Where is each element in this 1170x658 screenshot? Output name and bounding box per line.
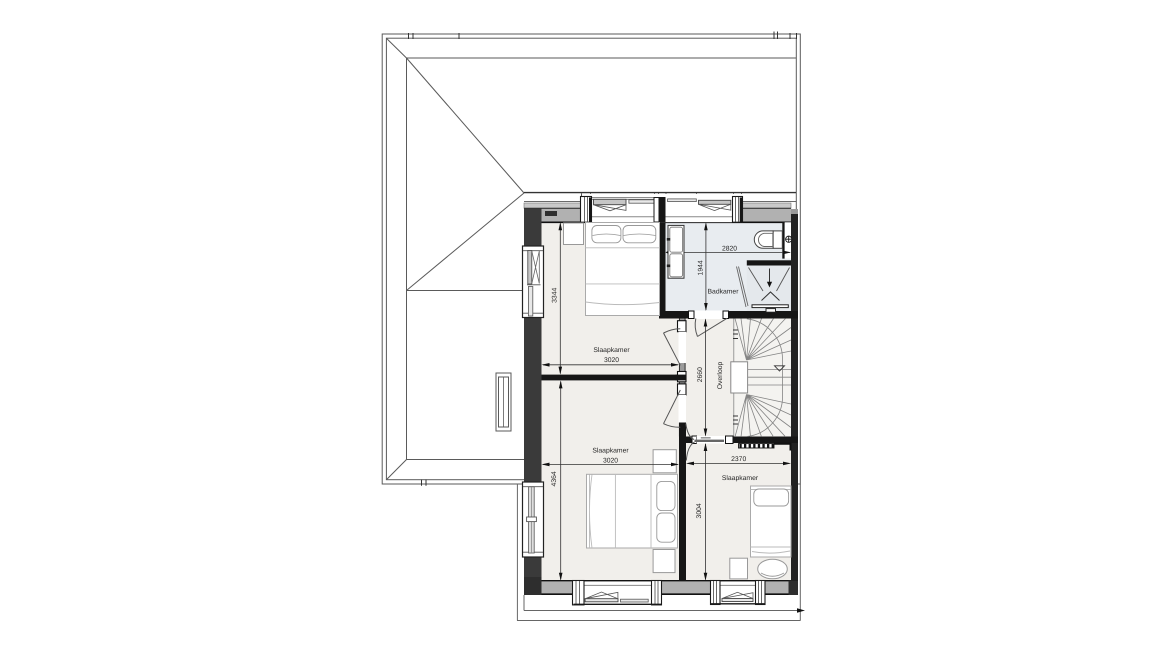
svg-text:3004: 3004 bbox=[696, 503, 703, 518]
svg-text:Slaapkamer: Slaapkamer bbox=[722, 475, 759, 482]
svg-text:2660: 2660 bbox=[697, 367, 704, 382]
svg-text:Overloop: Overloop bbox=[717, 361, 724, 389]
svg-text:1944: 1944 bbox=[697, 260, 704, 275]
svg-text:2370: 2370 bbox=[731, 456, 746, 463]
svg-text:Slaapkamer: Slaapkamer bbox=[593, 347, 630, 354]
svg-text:Slaapkamer: Slaapkamer bbox=[592, 447, 629, 454]
svg-text:2820: 2820 bbox=[722, 245, 737, 252]
svg-text:3344: 3344 bbox=[552, 288, 559, 303]
svg-text:3020: 3020 bbox=[604, 357, 619, 364]
svg-text:4364: 4364 bbox=[551, 471, 558, 486]
svg-text:3020: 3020 bbox=[603, 458, 618, 465]
svg-text:Badkamer: Badkamer bbox=[708, 288, 740, 295]
